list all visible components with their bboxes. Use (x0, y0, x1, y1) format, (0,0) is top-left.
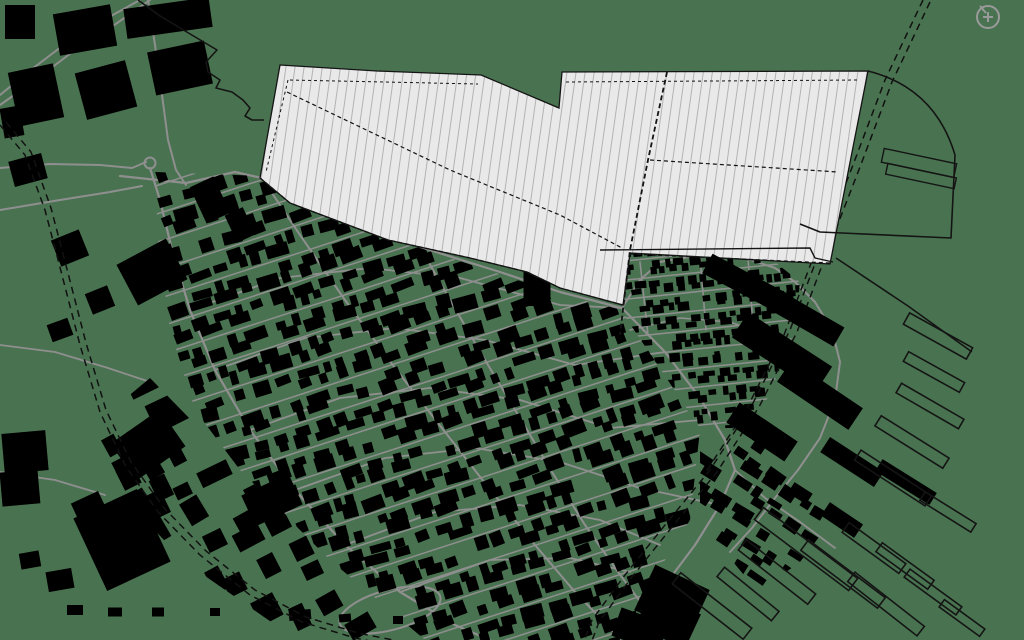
map-canvas (0, 0, 1024, 640)
city-figure-ground-map (0, 0, 1024, 640)
